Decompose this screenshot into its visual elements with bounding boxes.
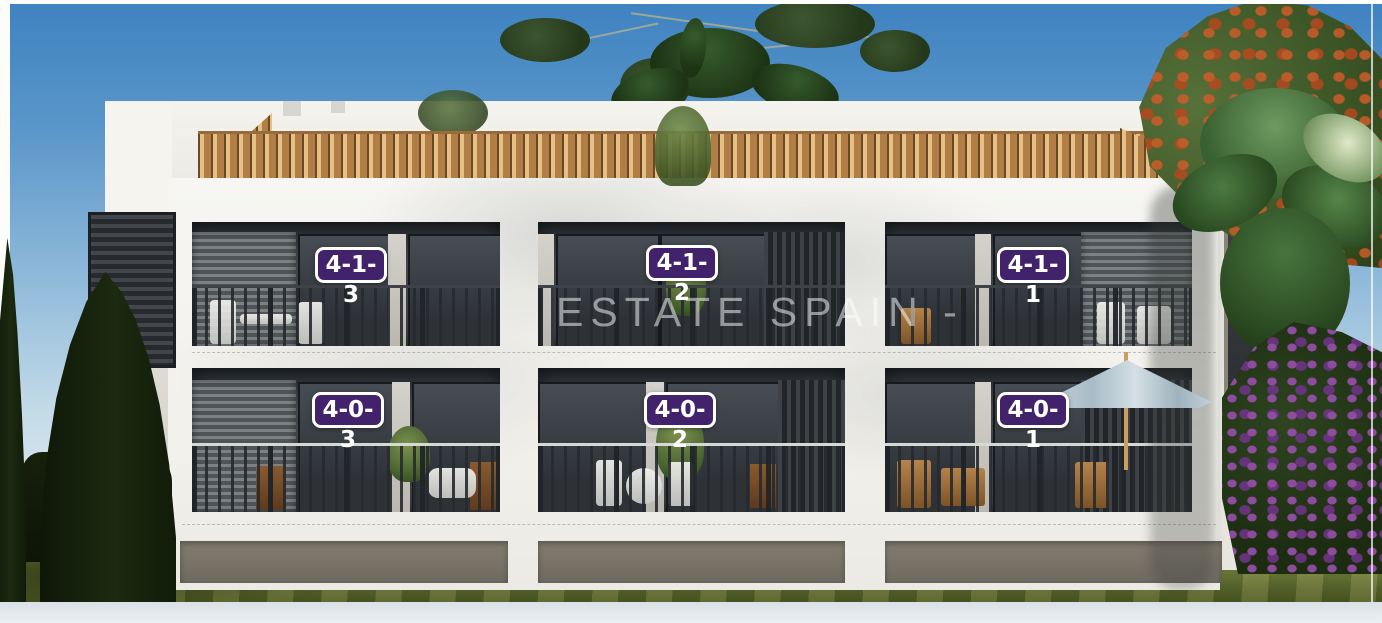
parapet-notch	[283, 101, 301, 116]
parapet-notch	[331, 101, 345, 113]
floor-separation-line	[192, 352, 1216, 353]
building-render-scene: ESTATE SPAIN - 4-1-3 4-1-2 4-1-1 4-0-3 4…	[0, 0, 1382, 623]
unit-badge-4-1-1[interactable]: 4-1-1	[997, 247, 1069, 283]
unit-badge-4-1-3[interactable]: 4-1-3	[315, 247, 387, 283]
base-recessed-panel	[538, 541, 845, 583]
base-recessed-panel	[180, 541, 508, 583]
leaf-cluster	[500, 18, 590, 62]
unit-badge-4-0-2[interactable]: 4-0-2	[644, 392, 716, 428]
base-separation-line	[182, 524, 1216, 525]
image-border-top	[0, 0, 1382, 4]
shrub-over-roof-tiles	[655, 106, 711, 186]
balcony-railing	[538, 443, 845, 512]
image-border-bottom	[0, 602, 1382, 623]
shrub-behind-roof	[418, 90, 488, 136]
unit-badge-4-1-2[interactable]: 4-1-2	[646, 245, 718, 281]
palm-crown-behind-roof	[610, 18, 840, 114]
image-border-right-line	[1371, 0, 1373, 602]
balcony-railing	[885, 443, 1192, 512]
unit-badge-4-0-3[interactable]: 4-0-3	[312, 392, 384, 428]
leaf-cluster	[860, 30, 930, 72]
balcony-unit-4-0-2	[538, 368, 845, 512]
watermark-text: ESTATE SPAIN -	[556, 289, 964, 336]
unit-badge-4-0-1[interactable]: 4-0-1	[997, 392, 1069, 428]
